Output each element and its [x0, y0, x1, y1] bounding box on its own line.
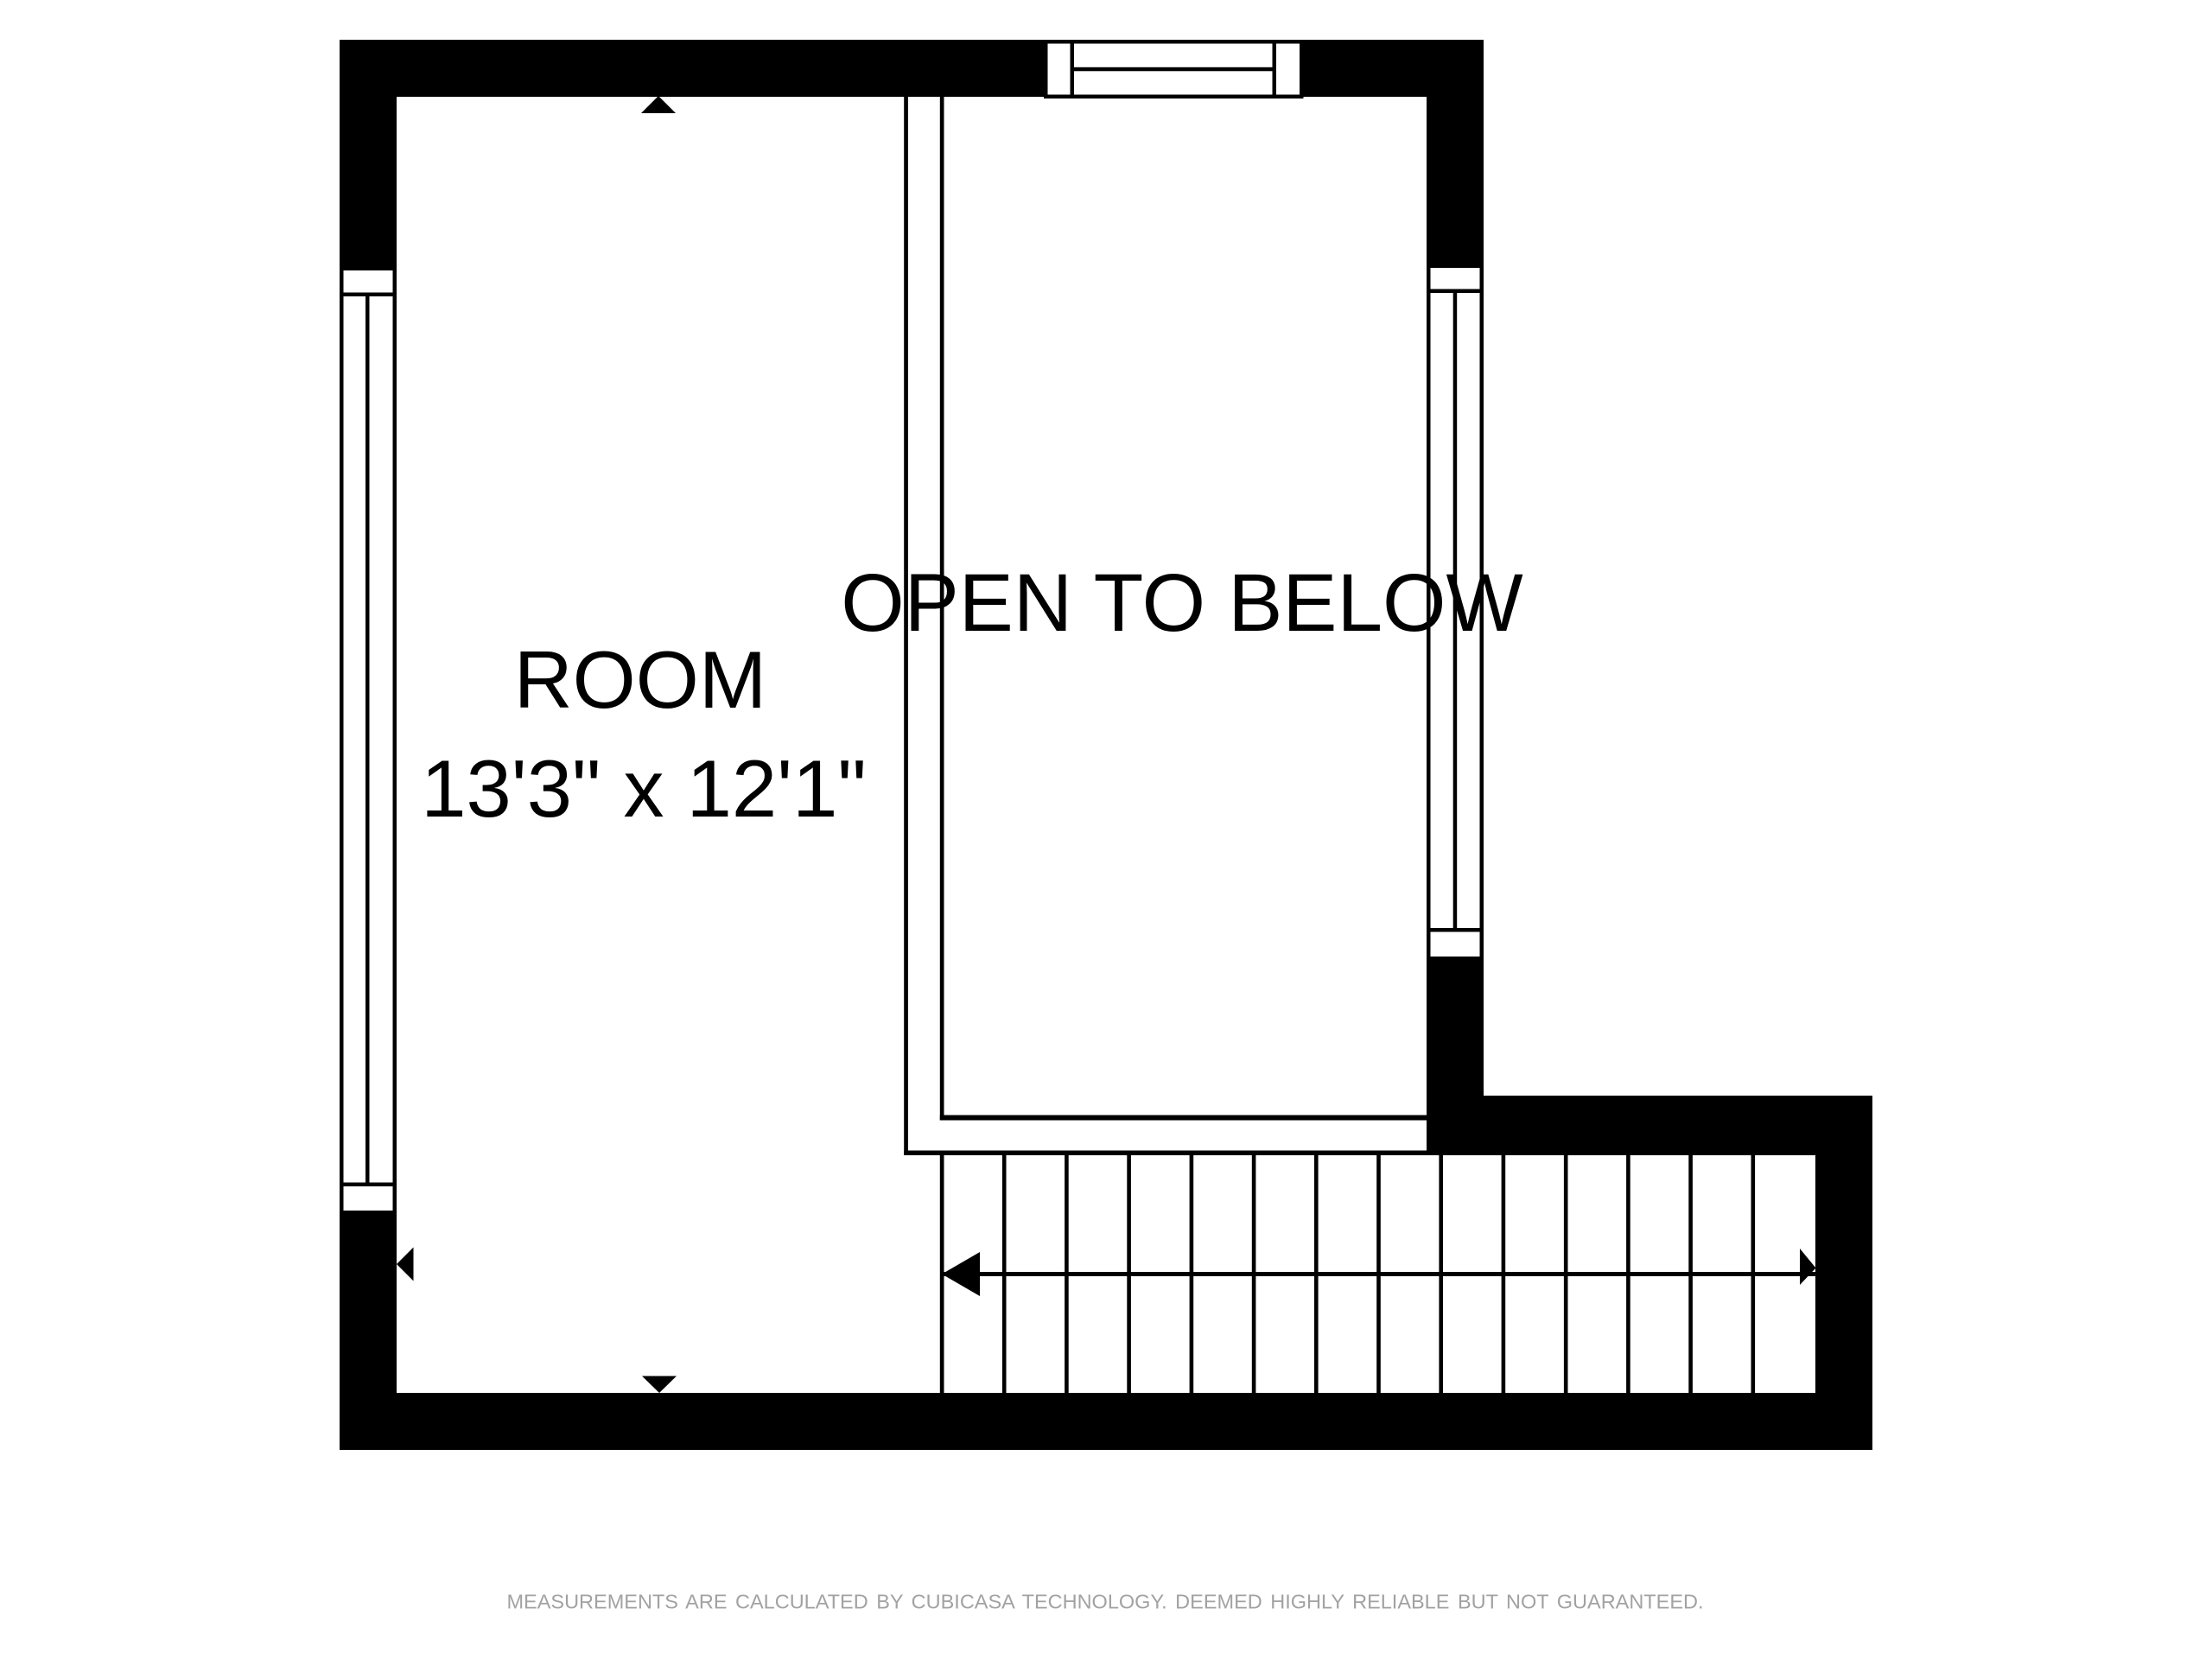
svg-text:13'3" x 12'1": 13'3" x 12'1"	[421, 743, 867, 834]
svg-text:ROOM: ROOM	[514, 634, 766, 725]
svg-text:OPEN TO BELOW: OPEN TO BELOW	[841, 557, 1522, 649]
svg-text:MEASUREMENTS ARE CALCULATED BY: MEASUREMENTS ARE CALCULATED BY CUBICASA …	[506, 1591, 1703, 1613]
